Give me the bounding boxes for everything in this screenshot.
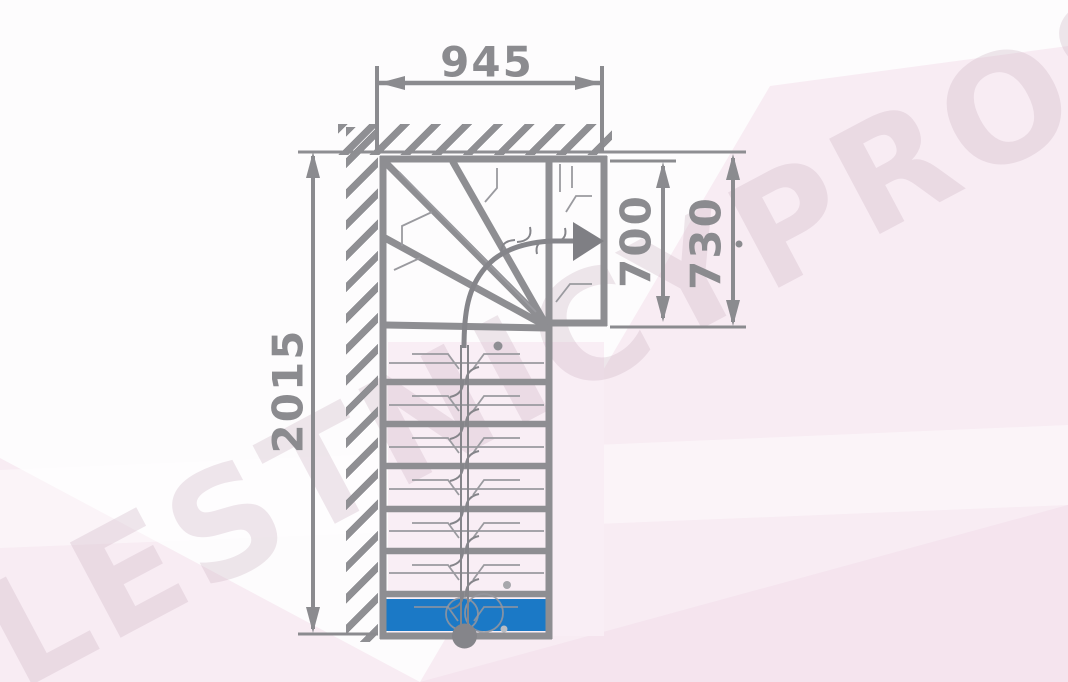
- dimension-label-top-width: 945: [440, 38, 534, 87]
- dimension-label-flight-length: 2015: [264, 329, 313, 454]
- dimension-label-exit-outer: 730: [682, 196, 731, 290]
- straight-treads: [386, 382, 546, 594]
- stair-plan-page: LESTNICYPROSTO.RU: [0, 0, 1068, 682]
- direction-arrow-icon: [573, 222, 604, 261]
- start-point-icon: [452, 624, 477, 649]
- stair-plan-drawing: [0, 0, 1068, 682]
- dimension-label-exit-inner: 700: [612, 194, 661, 288]
